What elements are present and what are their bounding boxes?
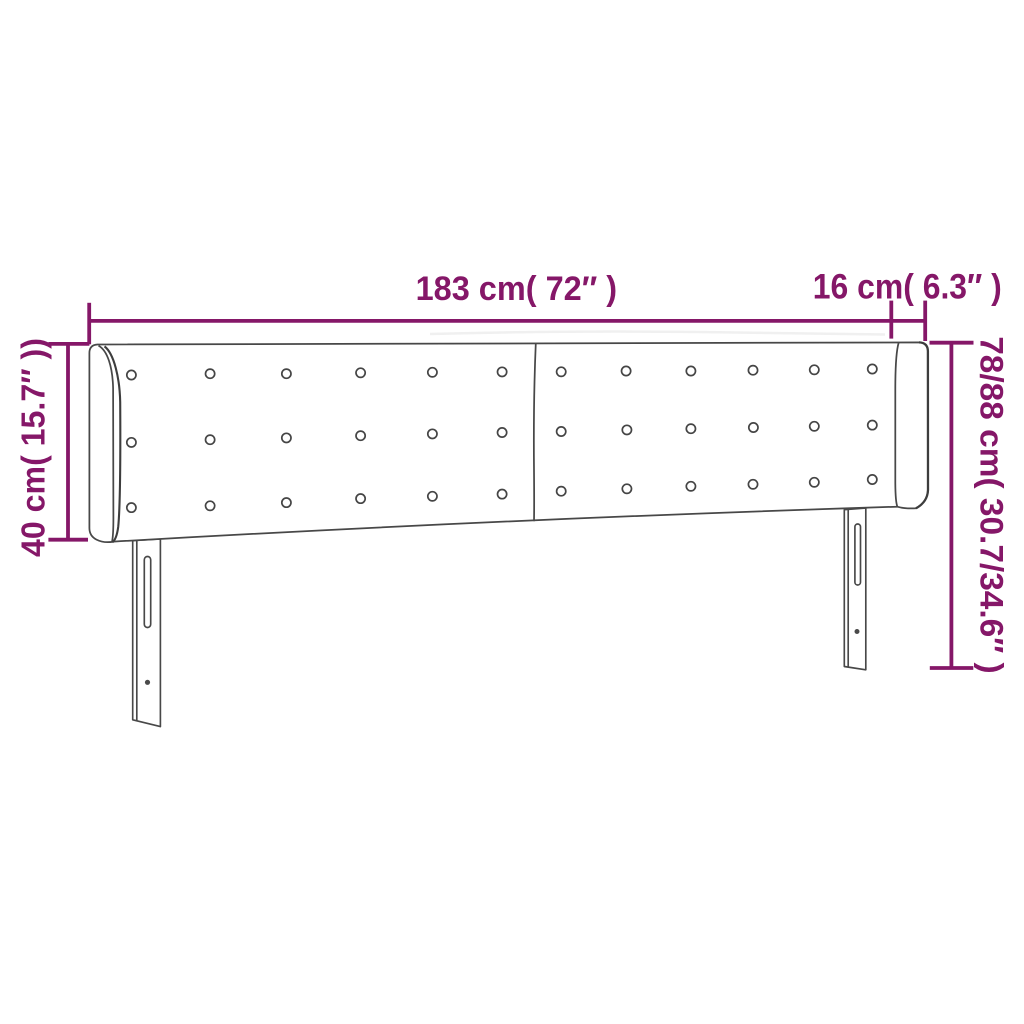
svg-text:40 cm( 15.7″ )): 40 cm( 15.7″ ))	[15, 338, 52, 557]
svg-text:16 cm( 6.3″ ): 16 cm( 6.3″ )	[813, 266, 1002, 306]
svg-text:183 cm( 72″ ): 183 cm( 72″ )	[416, 270, 617, 308]
svg-text:78/88 cm( 30.7/34.6″ ): 78/88 cm( 30.7/34.6″ )	[974, 336, 1010, 674]
